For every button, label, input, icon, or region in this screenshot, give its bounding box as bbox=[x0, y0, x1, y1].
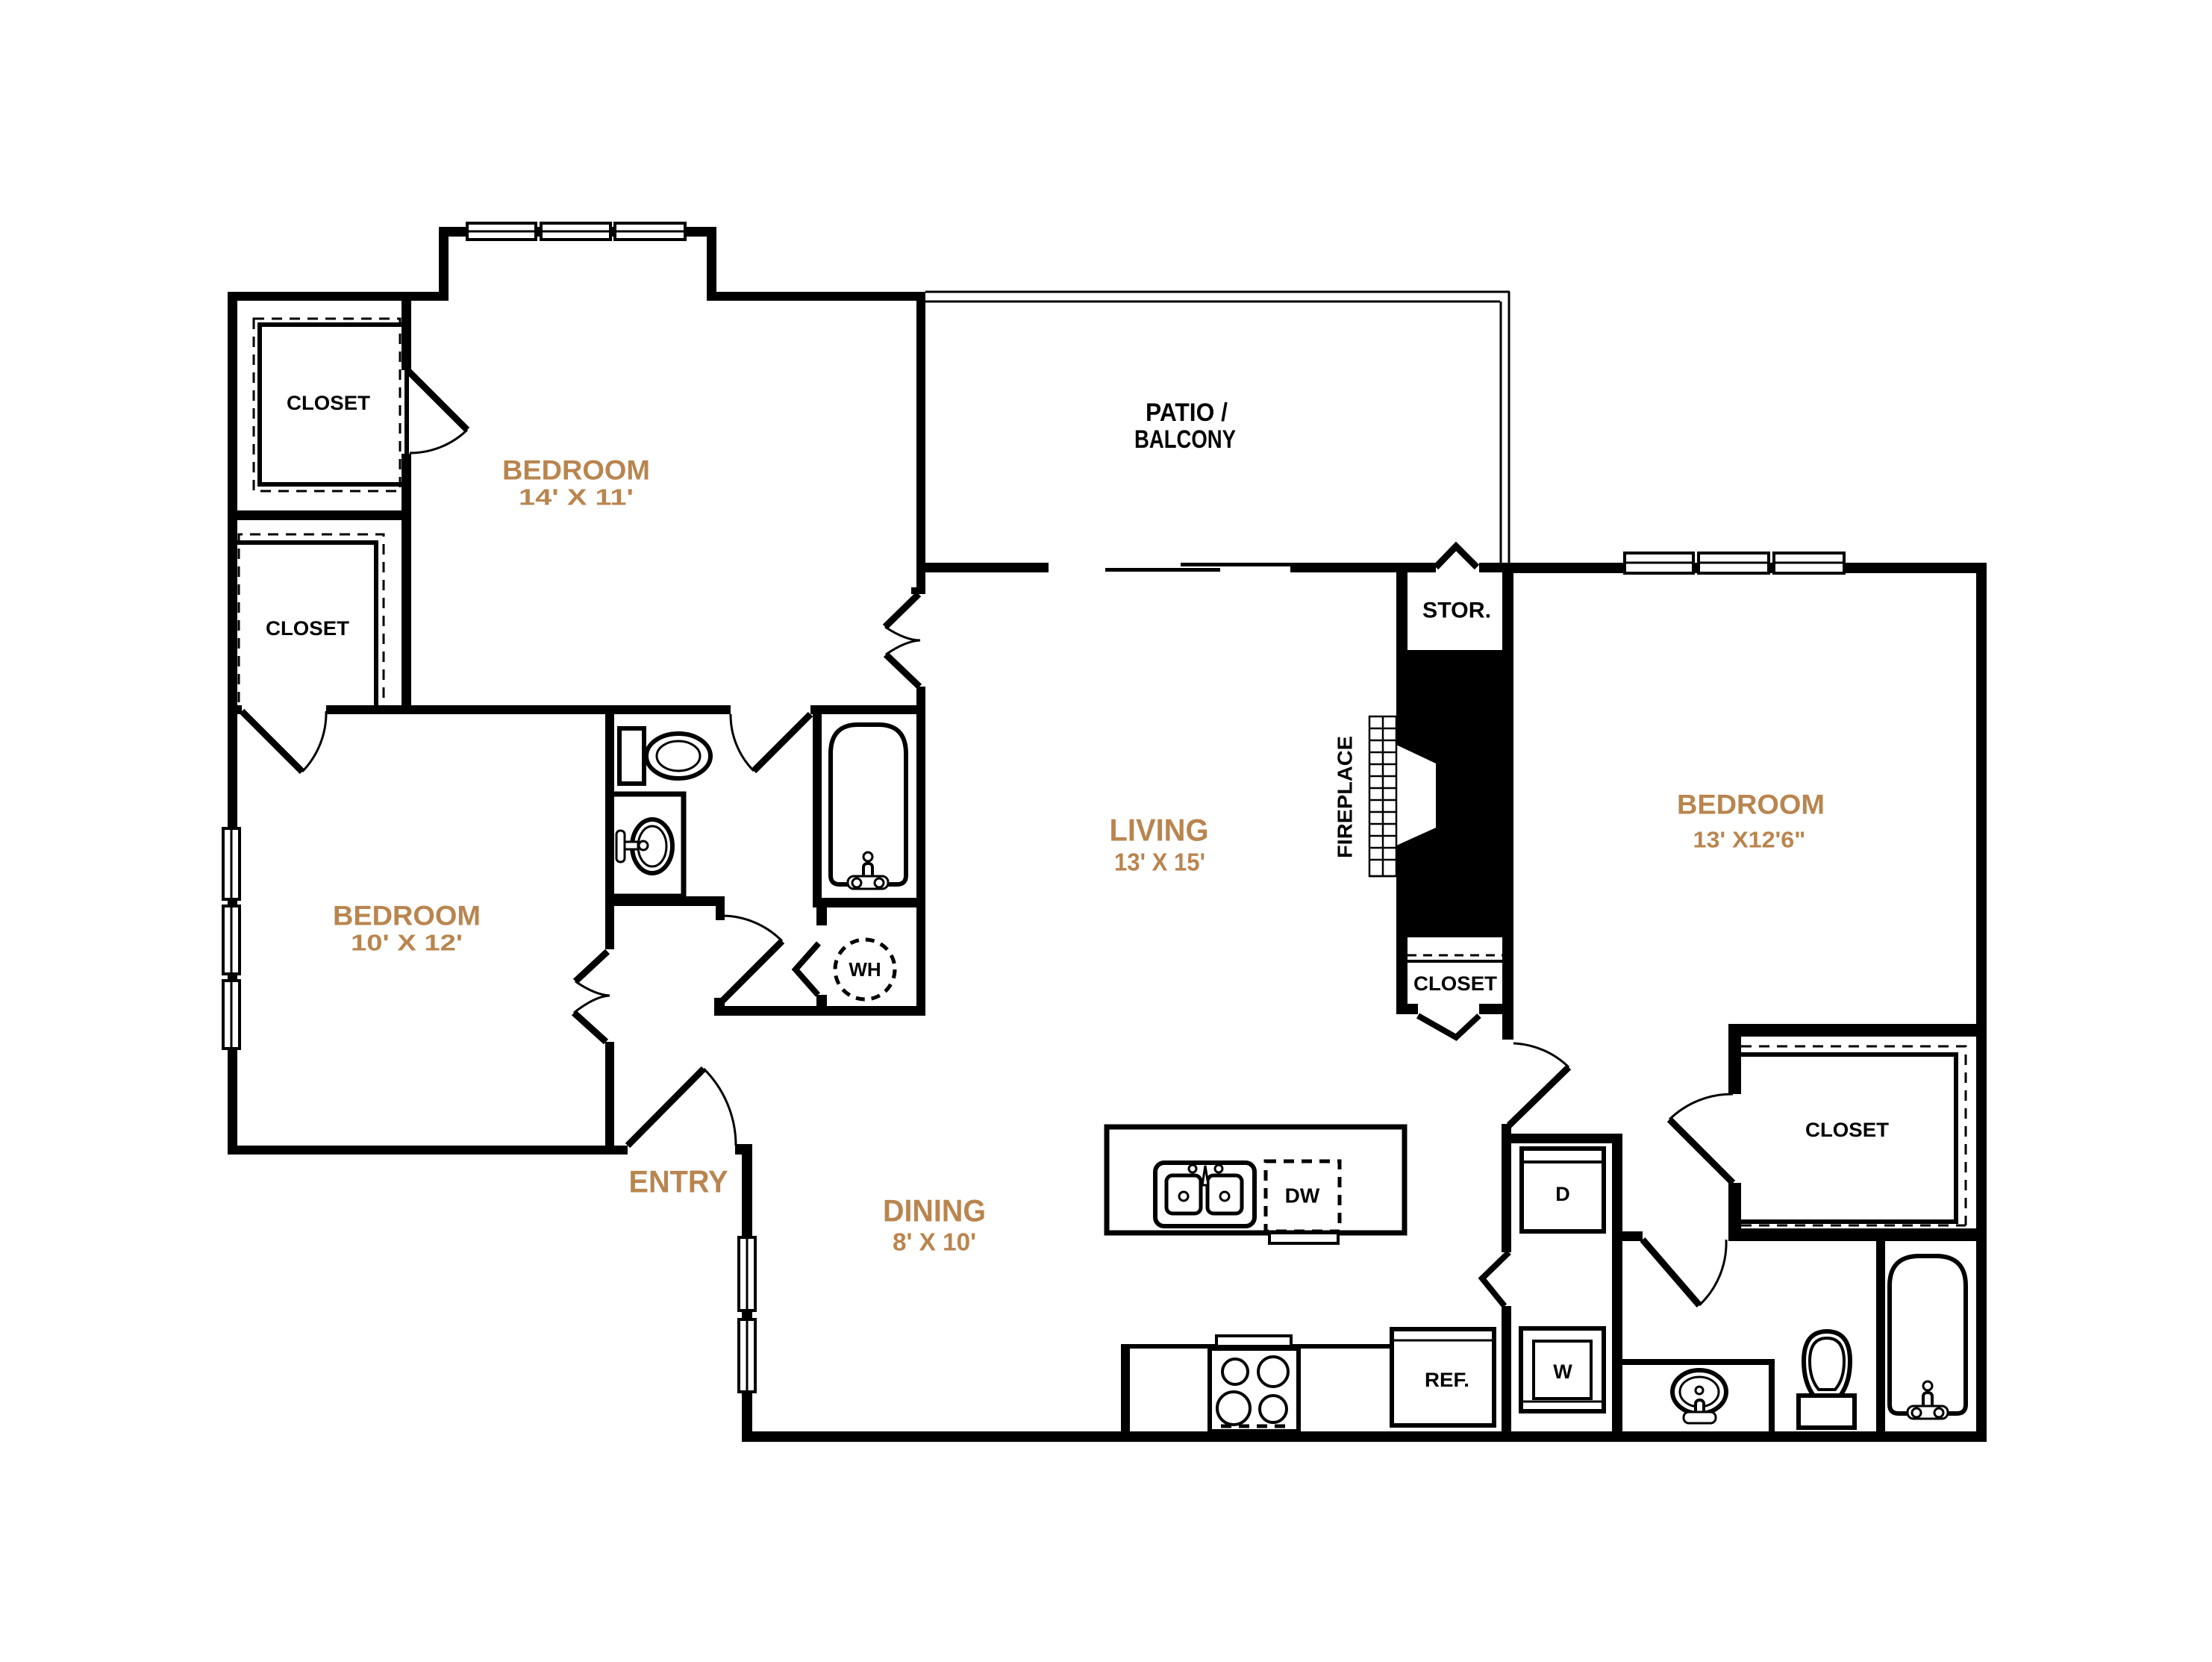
svg-text:8' X 10': 8' X 10' bbox=[893, 1228, 976, 1256]
svg-text:BEDROOM: BEDROOM bbox=[333, 901, 481, 931]
svg-text:CLOSET: CLOSET bbox=[266, 617, 350, 640]
svg-text:D: D bbox=[1555, 1183, 1570, 1205]
svg-text:BALCONY: BALCONY bbox=[1134, 425, 1236, 454]
svg-text:ENTRY: ENTRY bbox=[629, 1164, 728, 1199]
svg-text:WH: WH bbox=[849, 958, 881, 981]
svg-text:CLOSET: CLOSET bbox=[1413, 972, 1498, 995]
svg-text:W: W bbox=[1553, 1360, 1572, 1383]
svg-text:DW: DW bbox=[1285, 1184, 1320, 1208]
svg-text:PATIO /: PATIO / bbox=[1146, 399, 1228, 427]
svg-text:DINING: DINING bbox=[883, 1193, 986, 1228]
svg-text:13' X12'6": 13' X12'6" bbox=[1693, 827, 1806, 853]
svg-text:STOR.: STOR. bbox=[1422, 599, 1491, 623]
svg-text:BEDROOM: BEDROOM bbox=[502, 455, 650, 486]
svg-text:CLOSET: CLOSET bbox=[287, 392, 371, 414]
svg-text:BEDROOM: BEDROOM bbox=[1677, 790, 1825, 820]
svg-text:LIVING: LIVING bbox=[1110, 813, 1209, 848]
svg-text:13' X 15': 13' X 15' bbox=[1114, 849, 1205, 876]
svg-text:14' X 11': 14' X 11' bbox=[519, 484, 634, 510]
svg-text:CLOSET: CLOSET bbox=[1805, 1119, 1890, 1141]
svg-text:10' X 12': 10' X 12' bbox=[351, 930, 463, 956]
svg-text:REF.: REF. bbox=[1425, 1369, 1469, 1391]
svg-text:FIREPLACE: FIREPLACE bbox=[1334, 736, 1357, 858]
